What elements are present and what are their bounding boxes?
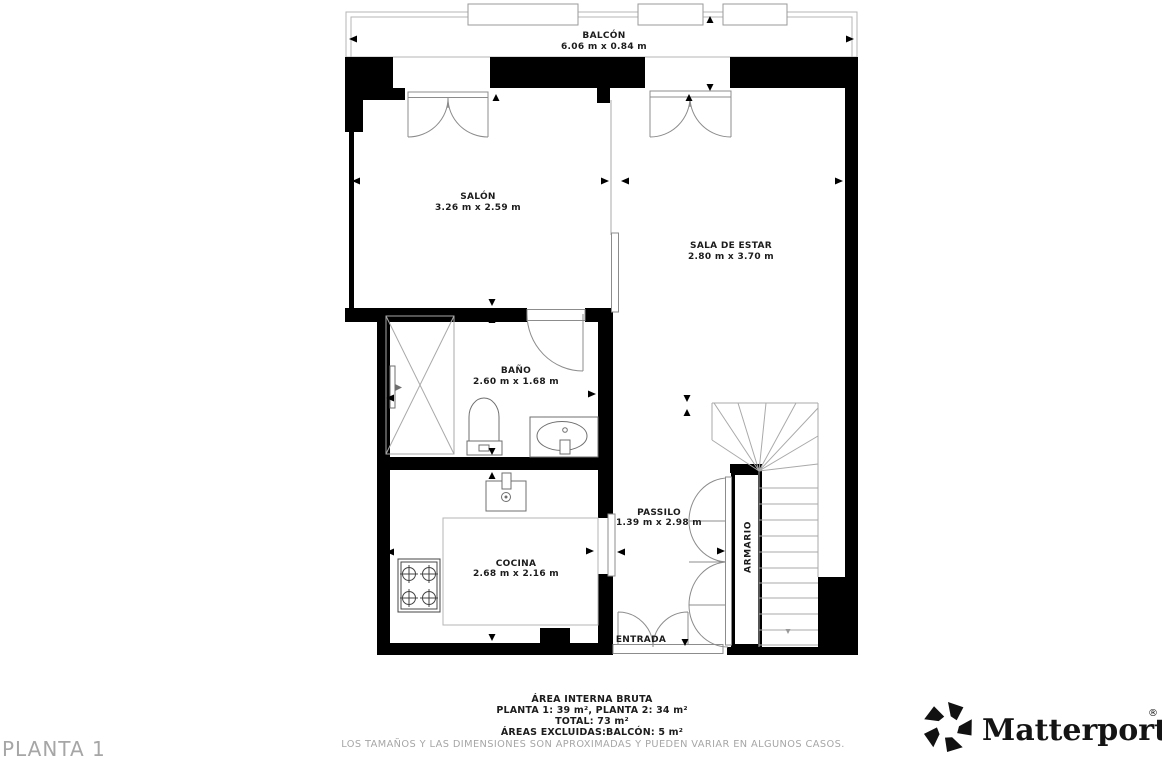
shower-head-icon [395, 384, 402, 391]
area-summary-excluded: ÁREAS EXCLUIDAS:BALCÓN: 5 m² [501, 726, 683, 738]
dim-arrow-right-icon [846, 36, 854, 43]
entrada-threshold [613, 645, 723, 654]
room-dims-salon: 3.26 m x 2.59 m [435, 203, 521, 213]
room-label-passilo: PASSILO [637, 508, 681, 518]
dim-arrow-left-icon [617, 549, 625, 556]
area-summary-total: TOTAL: 73 m² [555, 716, 629, 727]
area-summary-disclaimer: LOS TAMAÑOS Y LAS DIMENSIONES SON APROXI… [341, 737, 845, 750]
dim-arrow-down-icon [489, 634, 496, 641]
room-label-bano: BAÑO [501, 365, 531, 376]
dim-arrow-right-icon [601, 178, 609, 185]
area-summary-title: ÁREA INTERNA BRUTA [531, 693, 653, 705]
dim-arrow-right-icon [588, 391, 596, 398]
toilet-tank [467, 441, 502, 455]
door-symbols [408, 91, 732, 654]
dim-arrow-down-icon [489, 299, 496, 306]
floor-plan-page: BALCÓN 6.06 m x 0.84 m SALÓN 3.26 m x 2.… [0, 0, 1162, 762]
room-dims-cocina: 2.68 m x 2.16 m [473, 569, 559, 579]
sink-faucet [560, 440, 570, 454]
walls [345, 57, 858, 655]
kitchen-drain-dot [505, 496, 508, 499]
room-dims-sala-de-estar: 2.80 m x 3.70 m [688, 252, 774, 262]
room-label-cocina: COCINA [496, 559, 537, 569]
kitchen-faucet [502, 473, 511, 489]
dim-arrow-left-icon [621, 178, 629, 185]
sliding-panel [726, 477, 732, 645]
sliding-panel [608, 514, 615, 576]
matterport-logo: Matterport ® [921, 702, 1162, 756]
sink-drain [563, 428, 568, 433]
stove-burners [400, 565, 438, 607]
dim-arrow-right-icon [586, 548, 594, 555]
room-label-balcon: BALCÓN [582, 29, 625, 41]
dim-arrow-up-icon [684, 409, 691, 416]
window [638, 4, 703, 25]
door-threshold [408, 92, 488, 98]
room-label-entrada: ENTRADA [616, 635, 666, 645]
dim-arrow-up-icon [489, 472, 496, 479]
area-summary-plantas: PLANTA 1: 39 m², PLANTA 2: 34 m² [496, 705, 687, 716]
dim-arrow-left-icon [349, 36, 357, 43]
window [468, 4, 578, 25]
room-label-sala-de-estar: SALA DE ESTAR [690, 241, 772, 251]
room-dims-balcon: 6.06 m x 0.84 m [561, 42, 647, 52]
floor-plan-drawing: BALCÓN 6.06 m x 0.84 m SALÓN 3.26 m x 2.… [0, 0, 1162, 762]
door-arc-sala [650, 97, 731, 137]
room-label-armario: ARMARIO [744, 521, 754, 573]
door-arc-closet [689, 478, 728, 647]
registered-mark: ® [1148, 708, 1158, 719]
shower-fixture [390, 366, 395, 408]
dim-arrow-right-icon [717, 548, 725, 555]
door-arc-bano [527, 314, 583, 371]
room-dims-bano: 2.60 m x 1.68 m [473, 377, 559, 387]
area-summary: ÁREA INTERNA BRUTA PLANTA 1: 39 m², PLAN… [341, 693, 845, 750]
stove-outline [398, 559, 440, 612]
door-threshold [650, 91, 731, 97]
room-dims-passilo: 1.39 m x 2.98 m [616, 518, 702, 528]
floor-label: PLANTA 1 [2, 737, 106, 761]
matterport-logo-text: Matterport [982, 713, 1162, 748]
stair-direction-arrow-icon [786, 629, 791, 634]
sliding-panel [612, 233, 619, 312]
room-label-salon: SALÓN [460, 190, 496, 202]
dim-arrow-right-icon [835, 178, 843, 185]
stair-winder-fan [712, 403, 818, 471]
door-arc-salon [408, 98, 488, 137]
kitchen-fixtures [398, 473, 598, 625]
dim-arrow-down-icon [684, 395, 691, 402]
stove [398, 559, 440, 612]
dim-arrow-up-icon [493, 94, 500, 101]
matterport-pinwheel-icon [921, 702, 977, 756]
stair-treads [759, 488, 818, 645]
door-threshold [527, 310, 585, 321]
toilet-bowl [469, 398, 499, 441]
stove-inner [401, 562, 437, 609]
window [723, 4, 787, 25]
dim-arrow-down-icon [707, 84, 714, 91]
wall-openings [527, 308, 758, 644]
